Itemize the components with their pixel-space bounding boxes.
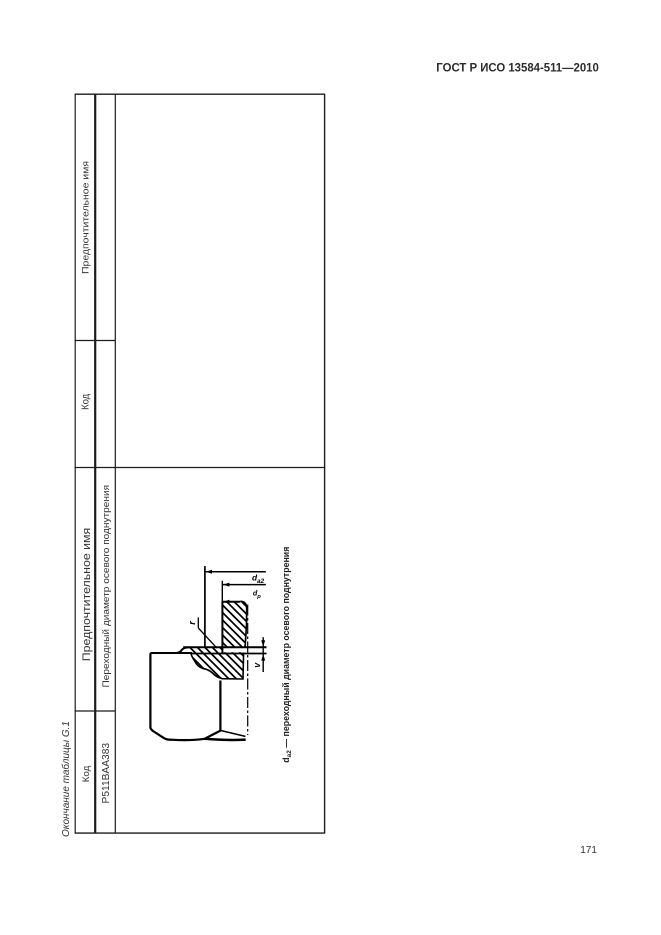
svg-text:dp: dp	[253, 588, 261, 600]
svg-text:171: 171	[580, 845, 597, 856]
svg-text:Переходный диаметр осевого под: Переходный диаметр осевого поднутрения	[101, 485, 112, 688]
svg-text:ГОСТ Р ИСО 13584-511—2010: ГОСТ Р ИСО 13584-511—2010	[436, 61, 599, 75]
svg-text:Предпочтительное имя: Предпочтительное имя	[81, 161, 91, 274]
svg-text:Код: Код	[80, 765, 91, 782]
svg-text:Код: Код	[80, 394, 91, 410]
svg-text:Предпочтительное имя: Предпочтительное имя	[81, 528, 93, 662]
svg-text:r: r	[187, 620, 198, 625]
svg-text:da2 — переходный диаметр осево: da2 — переходный диаметр осевого поднутр…	[281, 547, 292, 763]
svg-text:Окончание таблицы G.1: Окончание таблицы G.1	[60, 721, 72, 837]
svg-text:P511BAA383: P511BAA383	[101, 743, 112, 804]
svg-text:da2: da2	[252, 572, 265, 585]
svg-text:v: v	[252, 662, 262, 668]
